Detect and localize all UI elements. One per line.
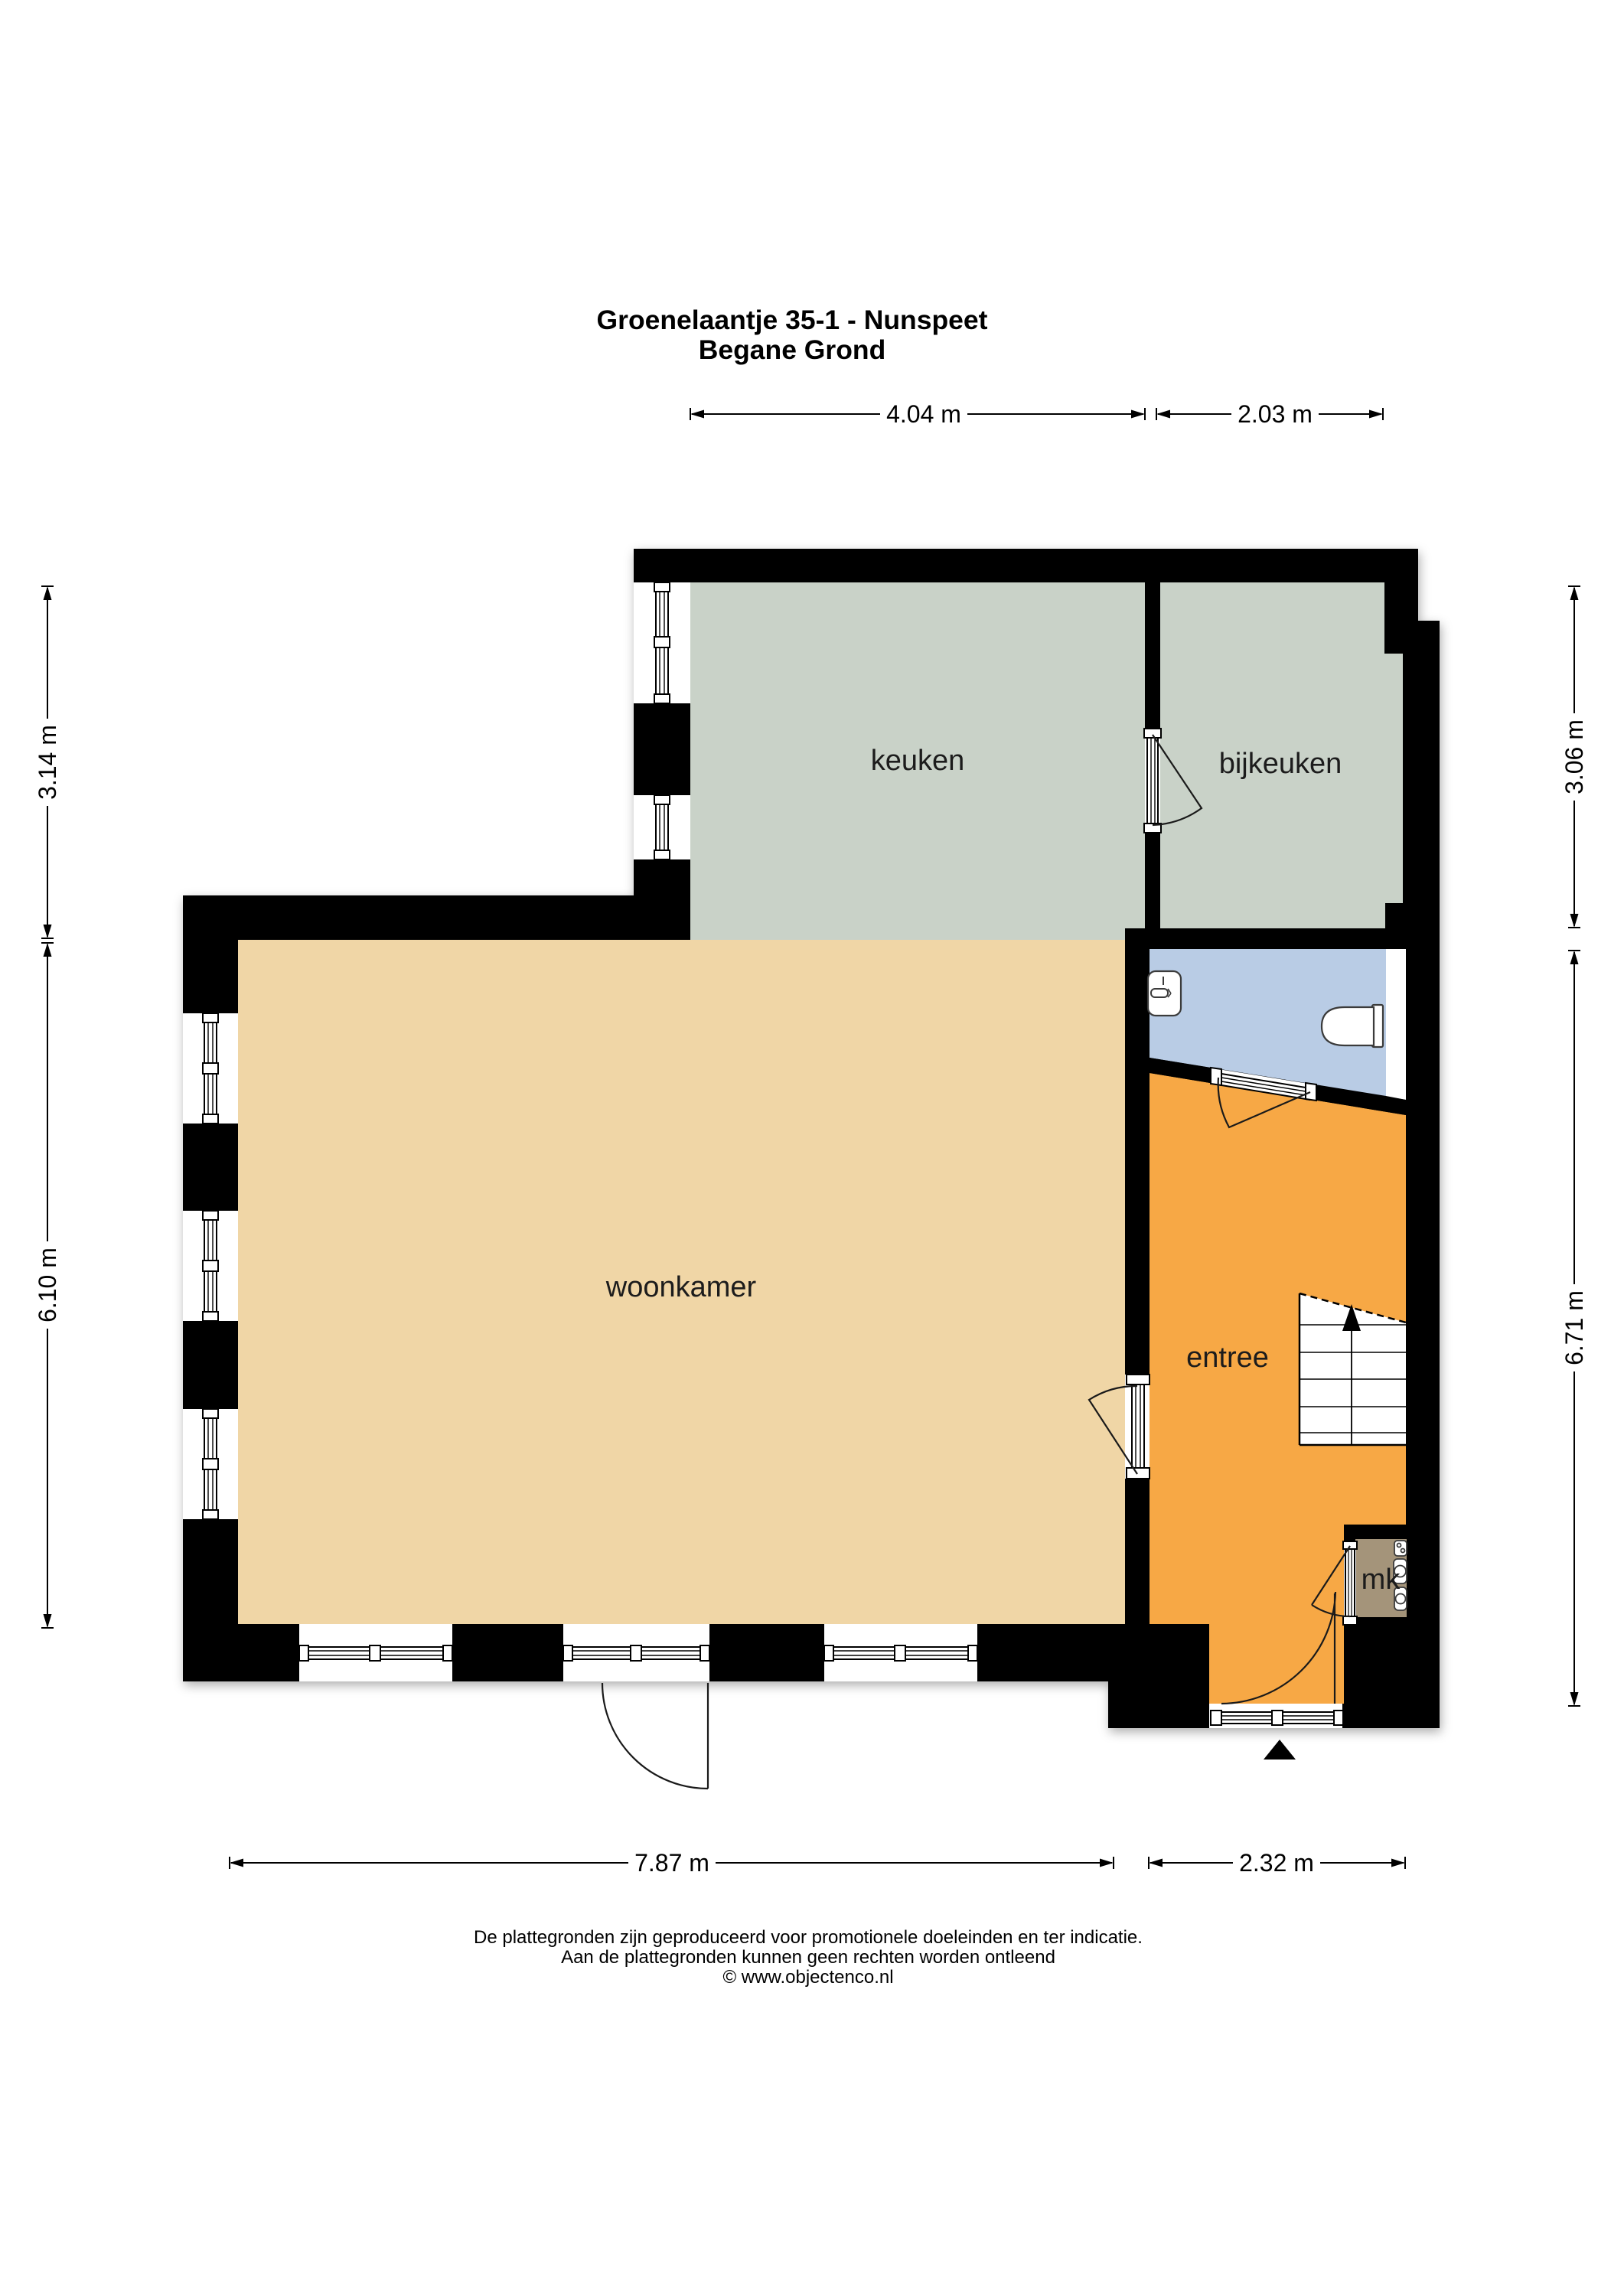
svg-text:3.14 m: 3.14 m (34, 725, 61, 800)
svg-text:Begane Grond: Begane Grond (699, 334, 886, 365)
svg-text:3.06 m: 3.06 m (1560, 719, 1588, 794)
svg-text:entree: entree (1186, 1342, 1269, 1374)
svg-text:keuken: keuken (871, 745, 965, 777)
svg-text:6.10 m: 6.10 m (34, 1247, 61, 1322)
svg-text:4.04 m: 4.04 m (886, 400, 961, 428)
svg-text:6.71 m: 6.71 m (1560, 1290, 1588, 1365)
svg-text:7.87 m: 7.87 m (634, 1849, 709, 1877)
svg-text:woonkamer: woonkamer (605, 1271, 757, 1303)
svg-text:mk: mk (1361, 1564, 1401, 1596)
svg-text:© www.objectenco.nl: © www.objectenco.nl (722, 1967, 893, 1988)
svg-text:2.03 m: 2.03 m (1238, 400, 1313, 428)
svg-text:Aan de plattegronden kunnen ge: Aan de plattegronden kunnen geen rechten… (561, 1947, 1055, 1968)
svg-text:Groenelaantje 35-1 - Nunspeet: Groenelaantje 35-1 - Nunspeet (597, 305, 988, 335)
svg-text:2.32 m: 2.32 m (1239, 1849, 1314, 1877)
svg-text:bijkeuken: bijkeuken (1219, 748, 1342, 780)
svg-text:De plattegronden zijn geproduc: De plattegronden zijn geproduceerd voor … (474, 1927, 1143, 1948)
